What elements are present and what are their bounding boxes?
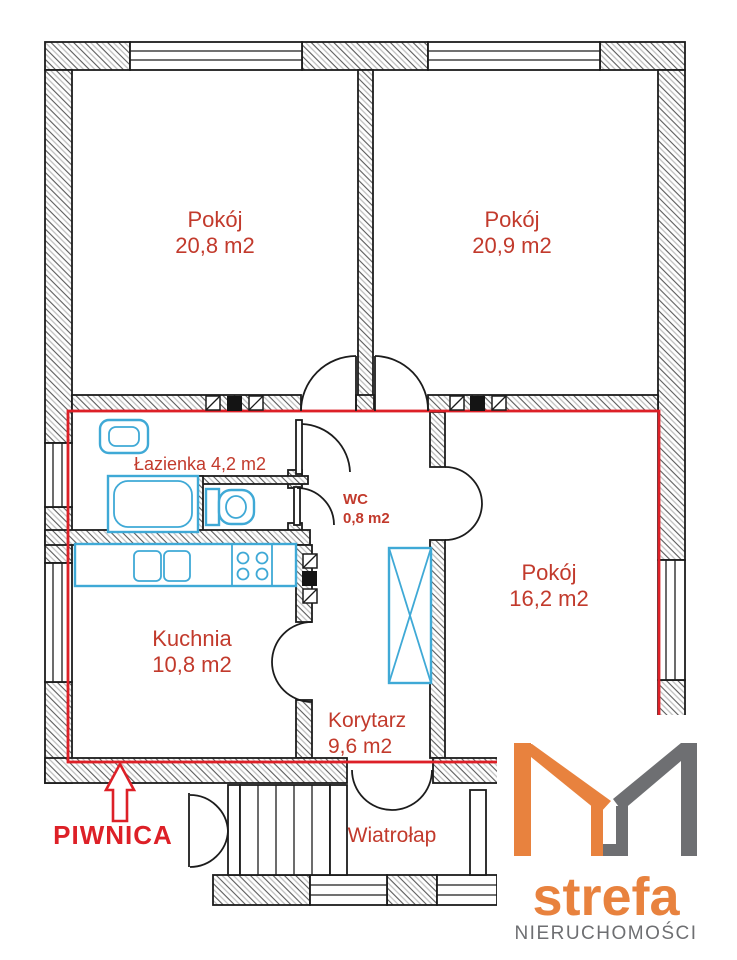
room-top-right-name: Pokój	[484, 207, 539, 232]
room-top-left-area: 20,8 m2	[175, 233, 255, 258]
vent-set-right	[450, 396, 506, 411]
logo-tagline-text: NIERUCHOMOŚCI	[514, 922, 697, 944]
room-top-left-name: Pokój	[187, 207, 242, 232]
door-wc	[294, 487, 334, 525]
stairs-door	[189, 793, 228, 867]
vent-set-kitchen	[302, 554, 317, 603]
door-room-top-left	[301, 356, 356, 411]
vestibule-right-wall	[470, 790, 486, 875]
wardrobe	[389, 548, 431, 683]
vent-set-left	[206, 396, 263, 411]
kitchen-name: Kuchnia	[152, 626, 232, 651]
door-kitchen-double	[272, 622, 312, 702]
window-right-room	[658, 560, 685, 680]
door-entry-double	[352, 770, 432, 810]
room-right-area: 16,2 m2	[509, 586, 589, 611]
room-right-name: Pokój	[521, 560, 576, 585]
staircase	[228, 785, 347, 875]
window-bottom-2	[437, 875, 497, 905]
bathroom-sink	[100, 420, 148, 453]
basement-label: PIWNICA	[53, 820, 173, 850]
bathtub	[108, 476, 198, 532]
door-room-right-double	[445, 467, 482, 540]
bathroom-label: Łazienka 4,2 m2	[134, 454, 266, 474]
vestibule-label: Wiatrołap	[348, 824, 437, 847]
corridor-area: 9,6 m2	[328, 735, 392, 758]
wc-area: 0,8 m2	[343, 510, 390, 527]
door-room-top-right	[375, 356, 428, 411]
kitchen-area: 10,8 m2	[152, 652, 232, 677]
toilet	[206, 489, 254, 525]
door-bathroom	[296, 420, 350, 474]
wc-name: WC	[343, 491, 368, 508]
window-bottom-1	[310, 875, 387, 905]
kitchen-counter	[75, 544, 296, 586]
corridor-name: Korytarz	[328, 709, 406, 732]
floor-plan: Pokój 20,8 m2 Pokój 20,9 m2 Łazienka 4,2…	[0, 0, 737, 960]
window-top-right	[428, 42, 600, 70]
room-top-right-area: 20,9 m2	[472, 233, 552, 258]
logo: strefa NIERUCHOMOŚCI	[497, 715, 737, 960]
window-top-left	[130, 42, 302, 70]
logo-brand-text: strefa	[532, 867, 680, 927]
